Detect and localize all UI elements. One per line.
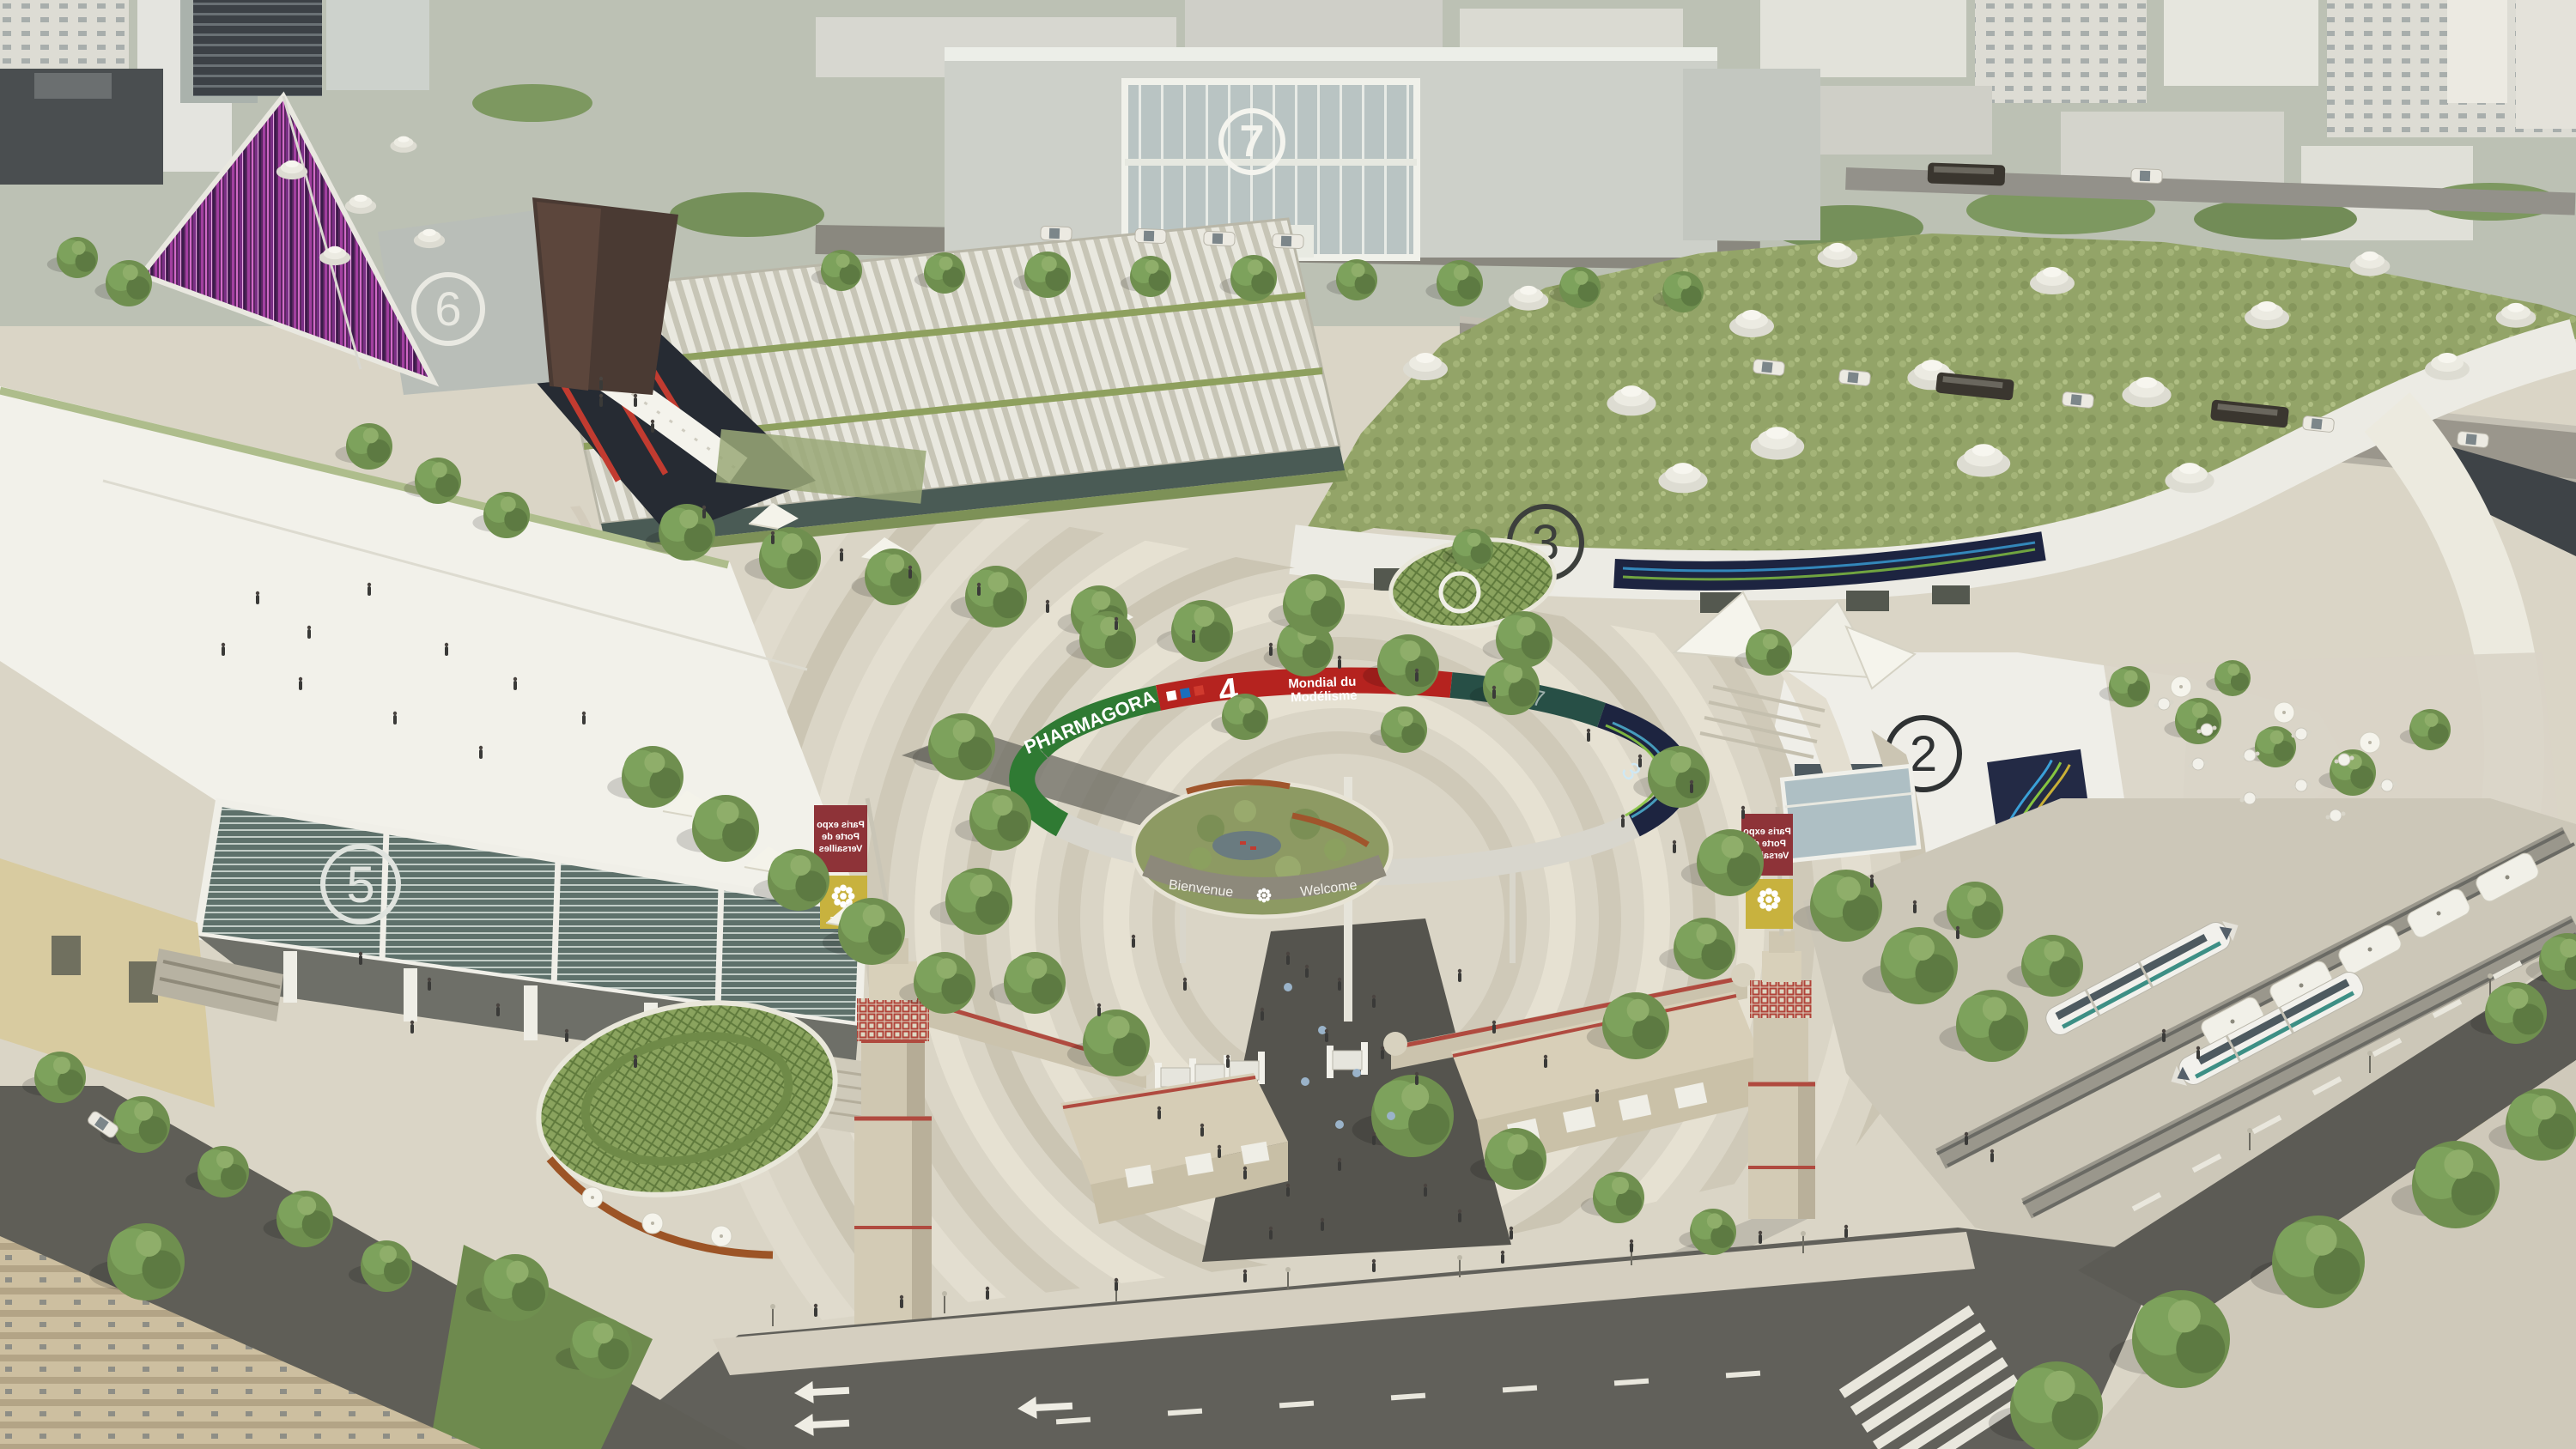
viparis-flower-icon [1257,888,1272,903]
pedestrian [599,377,603,390]
car [2062,391,2093,409]
pedestrian [1305,965,1309,978]
pedestrian [1956,926,1959,939]
hall2-number: 2 [1910,726,1937,782]
car [1838,369,1870,386]
bus [1928,162,2006,185]
central-garden: Bienvenue Welcome [1133,782,1391,917]
pedestrian [1243,1167,1247,1179]
pedestrian [368,583,371,596]
wayfinding-dot [1301,1077,1309,1086]
pedestrian [599,394,603,407]
pedestrian [1372,1132,1376,1145]
pedestrian [634,394,637,407]
pedestrian [1261,1008,1264,1021]
pedestrian [1424,1184,1427,1197]
ring-title-line2: Modélisme [1291,688,1358,706]
pedestrian [1132,935,1135,948]
flag-text: Porte de [822,832,860,842]
aerial-rendering: 7 3 2 [0,0,2576,1449]
car [2302,415,2334,433]
pedestrian [1587,729,1590,742]
pedestrian [1338,1158,1341,1171]
car [2457,431,2488,448]
car [2131,168,2163,183]
pedestrian [1338,656,1341,669]
parasol [2171,676,2191,697]
hall6-number: 6 [434,282,461,336]
pedestrian [840,549,843,561]
viparis-flower-icon [1758,888,1781,912]
pedestrian [299,677,302,690]
pedestrian [2196,1046,2200,1059]
wayfinding-dot [1284,983,1292,991]
pedestrian [814,1304,817,1317]
parasol [642,1213,663,1234]
pedestrian [1115,617,1118,630]
car [1204,231,1236,246]
pedestrian [1492,686,1496,699]
pedestrian [582,712,586,724]
pedestrian [1286,1184,1290,1197]
pedestrian [1458,1210,1461,1222]
pedestrian [908,566,912,579]
pedestrian [1870,875,1874,888]
pedestrian [1192,630,1195,643]
pedestrian [1243,1270,1247,1282]
flag-text: Paris expo [817,820,865,830]
pedestrian [1415,1072,1419,1085]
pedestrian [479,746,483,759]
car [1273,233,1304,248]
hall7-building: 7 [945,47,1820,258]
pedestrian [1226,1055,1230,1068]
pedestrian [1458,969,1461,982]
pedestrian [1595,1089,1599,1102]
pedestrian [1338,978,1341,991]
pedestrian [1630,1240,1633,1252]
pedestrian [1990,1149,1994,1162]
pedestrian [428,978,431,991]
pedestrian [1381,1046,1384,1059]
wayfinding-dot [1387,1112,1395,1120]
pedestrian [1741,806,1745,819]
parasol [2274,702,2294,723]
pedestrian [1269,1227,1273,1240]
pedestrian [1200,1124,1204,1137]
pedestrian [1690,780,1693,793]
pedestrian [1372,995,1376,1008]
pedestrian [496,1003,500,1016]
pedestrian [986,1287,989,1300]
pedestrian [1844,1225,1848,1238]
car [1135,228,1167,243]
pedestrian [1673,840,1676,853]
pedestrian [565,1029,568,1042]
car [1753,359,1784,376]
parasol [2360,732,2380,753]
pedestrian [1492,1021,1496,1034]
pedestrian [1621,815,1625,828]
pedestrian [1501,1251,1504,1264]
pedestrian [1097,1003,1101,1016]
pedestrian [1544,1055,1547,1068]
pedestrian [1269,643,1273,656]
pedestrian [651,420,654,433]
pedestrian [1286,952,1290,965]
hall5-number: 5 [346,856,374,913]
pedestrian [1157,1106,1161,1119]
pedestrian [977,583,981,596]
pedestrian [1415,669,1419,682]
pedestrian [1183,978,1187,991]
pedestrian [1218,1145,1221,1158]
pedestrian [513,677,517,690]
pedestrian [1046,600,1049,613]
pedestrian [1965,1132,1968,1145]
pedestrian [1115,1278,1118,1291]
wayfinding-dot [1335,1120,1344,1129]
pedestrian [410,1021,414,1034]
glass-entrance-pavilion [1782,766,1918,860]
pedestrian [1372,1259,1376,1272]
pedestrian [445,643,448,656]
pedestrian [900,1295,903,1308]
pedestrian [771,531,775,544]
pedestrian [702,506,706,518]
parasol [582,1187,603,1208]
hall7-number: 7 [1240,117,1265,167]
pedestrian [359,952,362,965]
pedestrian [1325,1029,1328,1042]
pedestrian [2162,1029,2166,1042]
pedestrian [256,591,259,604]
pedestrian [222,643,225,656]
pedestrian [1638,755,1642,767]
flag-text: Paris expo [1743,827,1791,837]
pedestrian [634,1055,637,1068]
pedestrian [1321,1218,1324,1231]
parasol [711,1226,732,1246]
car [1041,226,1072,240]
pedestrian [1913,900,1917,913]
flag-text: Versailles [819,844,863,854]
pedestrian [1510,1227,1513,1240]
pedestrian [307,626,311,639]
pedestrian [1759,1231,1762,1244]
pedestrian [393,712,397,724]
wayfinding-dot [1352,1069,1361,1077]
